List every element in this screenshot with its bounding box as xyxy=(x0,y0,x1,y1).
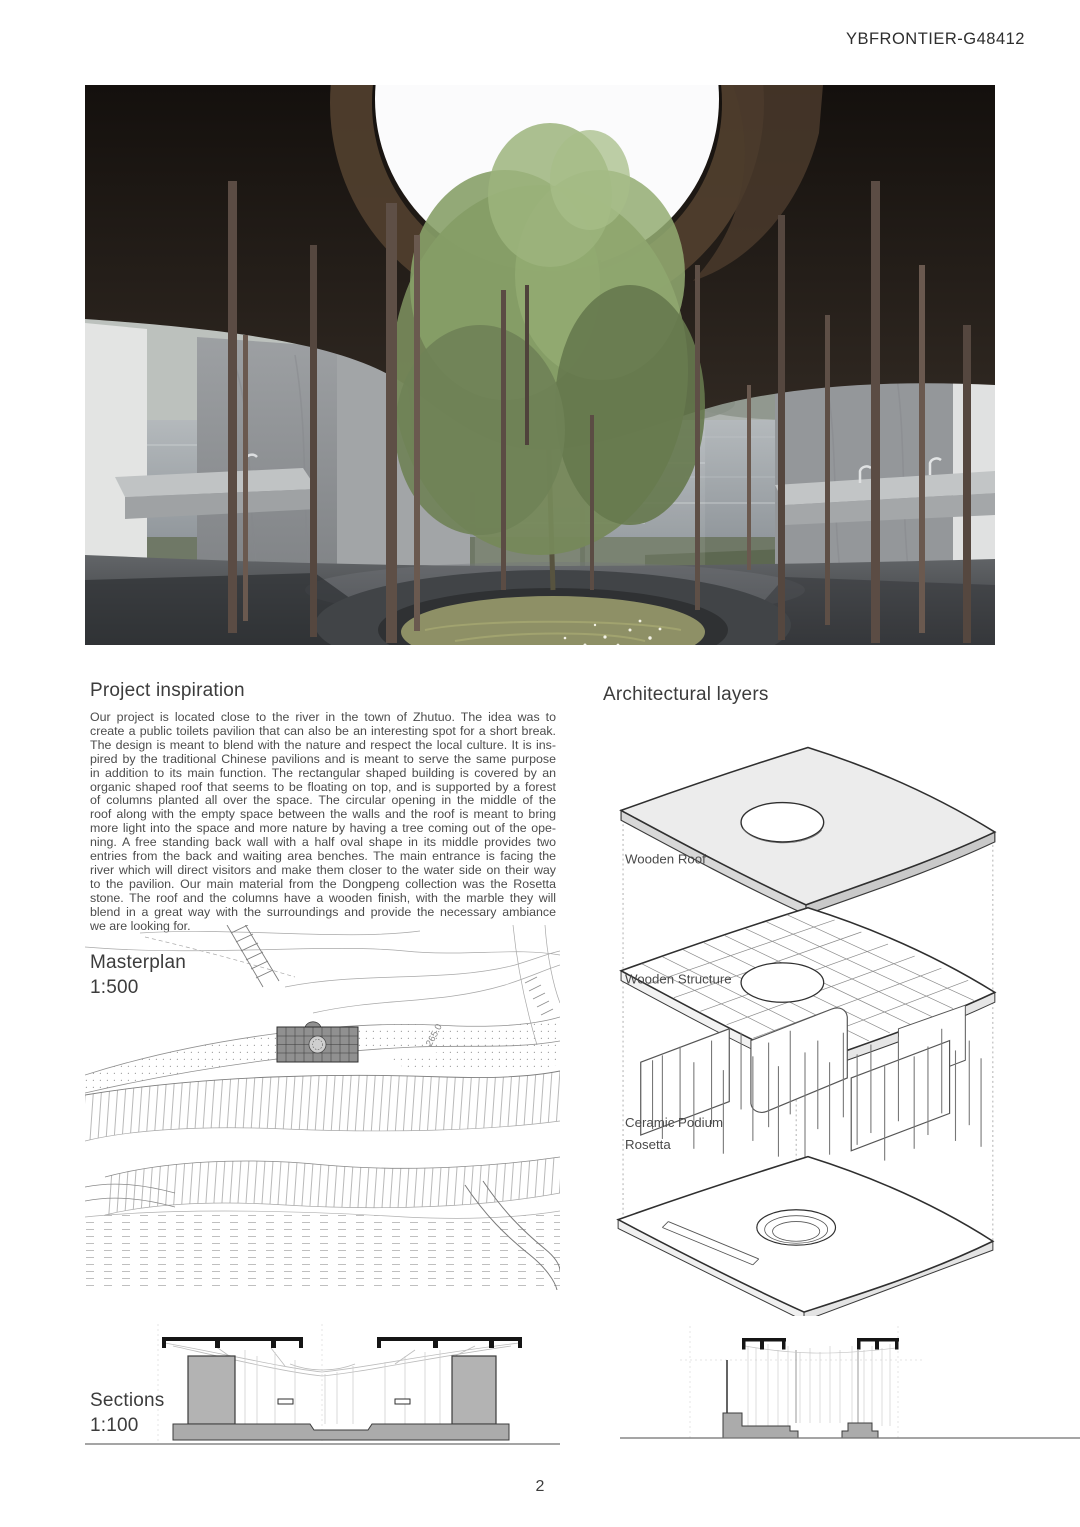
paragraph-line: pired by the traditional Chinese pavilio… xyxy=(90,753,556,767)
roof-label: Wooden Roof xyxy=(625,852,706,867)
paragraph-line: create a public toilets pavilion that ca… xyxy=(90,725,556,739)
roof-plate xyxy=(742,1338,899,1350)
riverbank-hatch-upper xyxy=(85,1071,560,1141)
competition-board-page: YBFRONTIER-G48412 xyxy=(0,0,1080,1527)
section-podium xyxy=(173,1424,509,1440)
cross-section-drawing xyxy=(620,1318,1080,1463)
paragraph-line: The design is meant to blend with the na… xyxy=(90,739,556,753)
project-inspiration-title: Project inspiration xyxy=(90,680,558,702)
guide-lines xyxy=(680,1326,925,1438)
paragraph-line: in addition to its main function. The re… xyxy=(90,767,556,781)
masterplan-title: Masterplan xyxy=(90,950,186,975)
structure-label: Wooden Structure xyxy=(625,972,732,987)
paragraph-line: blend in a great way with the surroundin… xyxy=(90,906,556,920)
paragraph-line: entries from the back and waiting area b… xyxy=(90,850,556,864)
project-inspiration-section: Project inspiration Our project is locat… xyxy=(90,680,558,934)
paragraph-line: organic shaped roof that seems to be flo… xyxy=(90,781,556,795)
project-inspiration-text: Our project is located close to the rive… xyxy=(90,711,556,934)
section-podium-left xyxy=(723,1413,798,1438)
masterplan-title-block: Masterplan 1:500 xyxy=(90,950,186,1000)
tree-circle xyxy=(309,1036,326,1053)
riverbank-hatch-lower xyxy=(85,1157,560,1215)
path-steps xyxy=(227,925,279,987)
pavilion-interior-render xyxy=(85,85,995,645)
entry-code: YBFRONTIER-G48412 xyxy=(846,30,1025,49)
paragraph-line: roof along with the empty space between … xyxy=(90,808,556,822)
architectural-layers-title: Architectural layers xyxy=(603,684,769,706)
sections-scale: 1:100 xyxy=(90,1413,164,1438)
section-podium-right xyxy=(842,1423,878,1438)
podium-label-line2: Rosetta xyxy=(625,1137,671,1152)
layers-diagram: Wooden Roof Wooden Structure Ceramic Pod… xyxy=(600,716,1010,1316)
podium-layer xyxy=(618,1157,993,1316)
sections-title: Sections xyxy=(90,1388,164,1413)
walls-columns-layer xyxy=(641,1005,981,1160)
bench-fixture xyxy=(278,1399,293,1404)
sections-title-block: Sections 1:100 xyxy=(90,1388,164,1438)
roof-layer xyxy=(621,747,995,914)
structure-opening xyxy=(741,963,824,1002)
roof-opening xyxy=(741,803,824,842)
glass-lines xyxy=(796,1350,858,1423)
page-number: 2 xyxy=(0,1478,1080,1496)
paragraph-line: Our project is located close to the rive… xyxy=(90,711,556,725)
pavilion-footprint xyxy=(277,1022,358,1062)
section-transverse xyxy=(620,1318,1080,1463)
roof-plate xyxy=(162,1337,522,1348)
paragraph-line: ning. A free standing back wall with a h… xyxy=(90,836,556,850)
paragraph-line: river which will direct visitors and mak… xyxy=(90,864,556,878)
paragraph-line: of columns planted all over the space. T… xyxy=(90,794,556,808)
render-image xyxy=(85,85,995,645)
paragraph-line: more light into the space and more natur… xyxy=(90,822,556,836)
section-wall-left xyxy=(188,1356,235,1424)
bench-fixture xyxy=(395,1399,410,1404)
slope-ticks xyxy=(525,977,553,1015)
masterplan-scale: 1:500 xyxy=(90,975,186,1000)
interior-columns xyxy=(748,1344,890,1426)
paragraph-line: to the pavilion. Our main material from … xyxy=(90,878,556,892)
podium-label-line1: Ceramic Podium xyxy=(625,1115,723,1130)
exploded-axonometric: Wooden Roof Wooden Structure Ceramic Pod… xyxy=(600,716,1010,1316)
section-wall-right xyxy=(452,1356,496,1424)
paragraph-line: stone. The roof and the columns have a w… xyxy=(90,892,556,906)
interior-columns xyxy=(245,1350,440,1424)
